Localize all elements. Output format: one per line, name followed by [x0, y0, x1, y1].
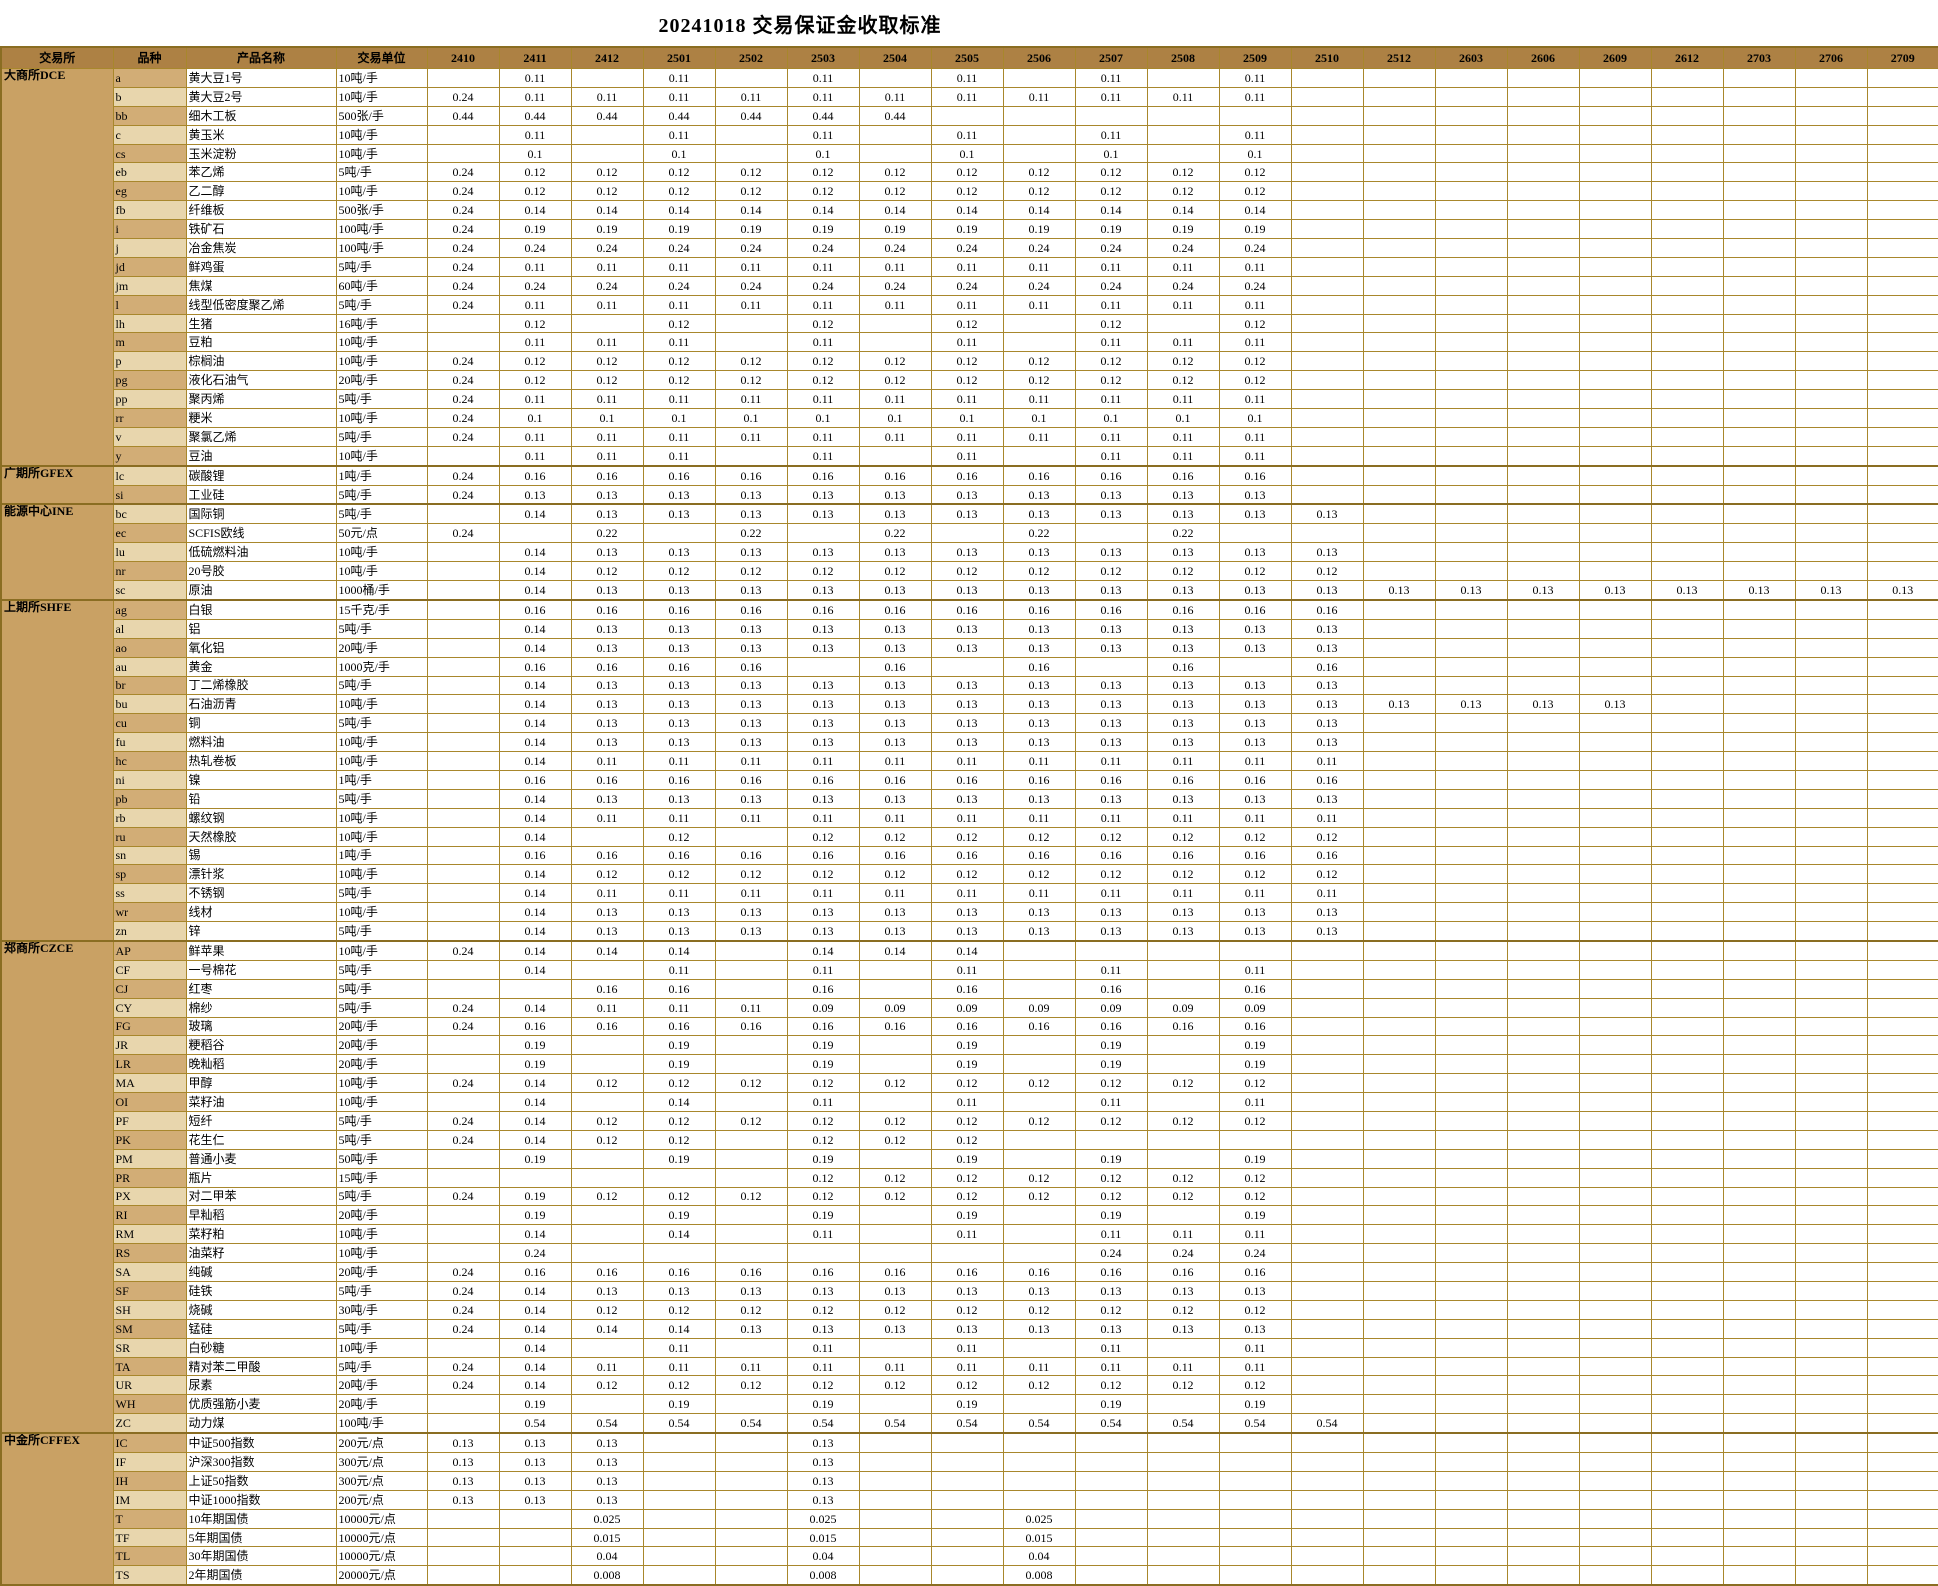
unit-cell: 1吨/手: [336, 770, 427, 789]
margin-value-cell: [1723, 257, 1795, 276]
margin-value-cell: [1291, 1566, 1363, 1585]
margin-value-cell: [1723, 1282, 1795, 1301]
margin-value-cell: [1795, 1490, 1867, 1509]
margin-value-cell: [1651, 1300, 1723, 1319]
margin-value-cell: [1867, 1017, 1938, 1036]
margin-value-cell: [1507, 1547, 1579, 1566]
code-cell: JR: [113, 1036, 186, 1055]
margin-value-cell: [931, 1528, 1003, 1547]
margin-value-cell: [1363, 1244, 1435, 1263]
margin-value-cell: [1219, 106, 1291, 125]
column-header: 2510: [1291, 47, 1363, 69]
margin-value-cell: 0.11: [1219, 752, 1291, 771]
margin-value-cell: [1651, 1206, 1723, 1225]
margin-value-cell: 0.12: [787, 562, 859, 581]
margin-value-cell: [1507, 1282, 1579, 1301]
code-cell: pg: [113, 371, 186, 390]
product-name-cell: 尿素: [186, 1376, 336, 1395]
margin-value-cell: [1075, 941, 1147, 960]
margin-value-cell: 0.11: [1147, 87, 1219, 106]
margin-value-cell: [1363, 543, 1435, 562]
margin-value-cell: 0.13: [571, 676, 643, 695]
margin-value-cell: 0.16: [931, 600, 1003, 619]
product-name-cell: 白砂糖: [186, 1338, 336, 1357]
margin-value-cell: [1651, 1566, 1723, 1585]
margin-value-cell: [1435, 1357, 1507, 1376]
margin-value-cell: 0.13: [1075, 695, 1147, 714]
margin-value-cell: 0.13: [1435, 695, 1507, 714]
margin-value-cell: [1651, 239, 1723, 258]
column-header: 2410: [427, 47, 499, 69]
margin-value-cell: [1147, 1528, 1219, 1547]
margin-value-cell: [1723, 314, 1795, 333]
margin-value-cell: 0.12: [643, 1111, 715, 1130]
margin-value-cell: 0.12: [643, 865, 715, 884]
margin-value-cell: [1507, 846, 1579, 865]
margin-value-cell: 0.1: [787, 409, 859, 428]
margin-value-cell: 0.19: [499, 1395, 571, 1414]
margin-value-cell: [1507, 733, 1579, 752]
margin-value-cell: [1795, 1282, 1867, 1301]
margin-value-cell: 0.13: [571, 903, 643, 922]
margin-value-cell: 0.19: [1219, 1149, 1291, 1168]
margin-value-cell: [1723, 543, 1795, 562]
product-name-cell: 聚氯乙烯: [186, 427, 336, 446]
margin-value-cell: 0.16: [499, 1017, 571, 1036]
margin-value-cell: [427, 638, 499, 657]
margin-value-cell: [1723, 1395, 1795, 1414]
margin-value-cell: [1507, 106, 1579, 125]
margin-value-cell: [1147, 1509, 1219, 1528]
margin-value-cell: [1363, 276, 1435, 295]
unit-cell: 10吨/手: [336, 144, 427, 163]
margin-value-cell: [1723, 638, 1795, 657]
margin-value-cell: [1291, 1036, 1363, 1055]
unit-cell: 10吨/手: [336, 352, 427, 371]
margin-value-cell: 0.14: [1075, 201, 1147, 220]
margin-value-cell: [1651, 182, 1723, 201]
margin-value-cell: 0.13: [571, 922, 643, 941]
margin-value-cell: [859, 1055, 931, 1074]
margin-value-cell: [1651, 846, 1723, 865]
margin-value-cell: [1075, 1528, 1147, 1547]
margin-value-cell: 0.24: [427, 1187, 499, 1206]
margin-value-cell: 0.11: [571, 884, 643, 903]
code-cell: TL: [113, 1547, 186, 1566]
margin-value-cell: [1651, 1453, 1723, 1472]
margin-value-cell: [859, 960, 931, 979]
margin-value-cell: [1579, 865, 1651, 884]
margin-value-cell: 0.14: [499, 1357, 571, 1376]
margin-value-cell: 0.12: [859, 827, 931, 846]
margin-value-cell: 0.11: [643, 333, 715, 352]
margin-value-cell: 0.13: [571, 714, 643, 733]
margin-value-cell: [1507, 676, 1579, 695]
margin-value-cell: [1579, 1055, 1651, 1074]
margin-value-cell: 0.19: [643, 1149, 715, 1168]
margin-value-cell: 0.19: [1219, 1395, 1291, 1414]
product-name-cell: 线型低密度聚乙烯: [186, 295, 336, 314]
product-name-cell: 鲜苹果: [186, 941, 336, 960]
product-name-cell: 细木工板: [186, 106, 336, 125]
margin-value-cell: 0.11: [1219, 1338, 1291, 1357]
table-row: eb苯乙烯5吨/手0.240.120.120.120.120.120.120.1…: [1, 163, 1938, 182]
margin-value-cell: 0.11: [1147, 427, 1219, 446]
margin-value-cell: 0.13: [1291, 922, 1363, 941]
margin-value-cell: [1435, 1225, 1507, 1244]
unit-cell: 20吨/手: [336, 1376, 427, 1395]
margin-value-cell: [1579, 163, 1651, 182]
margin-value-cell: 0.13: [1219, 903, 1291, 922]
margin-value-cell: [1075, 1566, 1147, 1585]
margin-value-cell: [1579, 1130, 1651, 1149]
margin-value-cell: [1435, 1282, 1507, 1301]
margin-value-cell: 0.11: [859, 87, 931, 106]
margin-value-cell: [1651, 1111, 1723, 1130]
margin-value-cell: [1579, 1300, 1651, 1319]
margin-value-cell: [1723, 808, 1795, 827]
margin-value-cell: 0.11: [931, 333, 1003, 352]
margin-value-cell: 0.11: [859, 427, 931, 446]
code-cell: ZC: [113, 1414, 186, 1433]
table-row: CF一号棉花5吨/手0.140.110.110.110.110.11: [1, 960, 1938, 979]
margin-value-cell: 0.13: [643, 695, 715, 714]
margin-value-cell: 0.11: [1219, 125, 1291, 144]
margin-value-cell: [715, 125, 787, 144]
table-row: IM中证1000指数200元/点0.130.130.130.13: [1, 1490, 1938, 1509]
margin-value-cell: 0.24: [787, 276, 859, 295]
unit-cell: 5吨/手: [336, 390, 427, 409]
margin-value-cell: 0.13: [715, 1319, 787, 1338]
margin-value-cell: [1651, 1509, 1723, 1528]
margin-value-cell: [1651, 638, 1723, 657]
margin-value-cell: 0.12: [859, 1130, 931, 1149]
margin-value-cell: 0.16: [1075, 979, 1147, 998]
margin-value-cell: 0.11: [1219, 390, 1291, 409]
margin-value-cell: [427, 695, 499, 714]
margin-value-cell: [1435, 846, 1507, 865]
margin-value-cell: [1867, 524, 1938, 543]
margin-value-cell: 0.12: [1147, 1168, 1219, 1187]
margin-value-cell: [427, 69, 499, 88]
margin-value-cell: 0.16: [1147, 1017, 1219, 1036]
margin-value-cell: 0.11: [1219, 1093, 1291, 1112]
margin-value-cell: 0.11: [499, 87, 571, 106]
margin-value-cell: 0.12: [931, 1376, 1003, 1395]
unit-cell: 1000克/手: [336, 657, 427, 676]
margin-value-cell: 0.12: [1219, 314, 1291, 333]
margin-value-cell: 0.11: [931, 69, 1003, 88]
margin-value-cell: [1363, 884, 1435, 903]
margin-value-cell: [1291, 941, 1363, 960]
margin-value-cell: 0.11: [787, 1225, 859, 1244]
margin-value-cell: [1723, 1509, 1795, 1528]
margin-value-cell: 0.11: [1003, 884, 1075, 903]
margin-value-cell: 0.14: [499, 941, 571, 960]
margin-value-cell: 0.24: [931, 239, 1003, 258]
margin-value-cell: 0.1: [1003, 409, 1075, 428]
margin-value-cell: 0.12: [1003, 1168, 1075, 1187]
margin-value-cell: 0.16: [1219, 600, 1291, 619]
margin-value-cell: [715, 333, 787, 352]
code-cell: WH: [113, 1395, 186, 1414]
margin-value-cell: [1795, 1244, 1867, 1263]
margin-value-cell: [1723, 941, 1795, 960]
margin-value-cell: 0.12: [1147, 182, 1219, 201]
code-cell: b: [113, 87, 186, 106]
margin-value-cell: [1867, 371, 1938, 390]
margin-value-cell: 0.19: [787, 1206, 859, 1225]
margin-value-cell: [1291, 1376, 1363, 1395]
margin-value-cell: 0.16: [1291, 600, 1363, 619]
margin-value-cell: 0.12: [931, 1074, 1003, 1093]
margin-value-cell: 0.13: [643, 789, 715, 808]
margin-value-cell: [1507, 960, 1579, 979]
table-row: SH烧碱30吨/手0.240.140.120.120.120.120.120.1…: [1, 1300, 1938, 1319]
table-row: PM普通小麦50吨/手0.190.190.190.190.190.19: [1, 1149, 1938, 1168]
margin-value-cell: 0.11: [571, 1357, 643, 1376]
table-row: zn锌5吨/手0.140.130.130.130.130.130.130.130…: [1, 922, 1938, 941]
margin-value-cell: [1363, 1225, 1435, 1244]
margin-value-cell: 0.14: [931, 941, 1003, 960]
margin-value-cell: 0.14: [499, 504, 571, 523]
margin-value-cell: [1867, 543, 1938, 562]
margin-value-cell: 0.11: [1075, 1357, 1147, 1376]
column-header: 交易所: [1, 47, 113, 69]
margin-value-cell: 0.11: [643, 1338, 715, 1357]
unit-cell: 500张/手: [336, 106, 427, 125]
page-title: 20241018 交易保证金收取标准: [659, 9, 942, 38]
margin-value-cell: 0.11: [1003, 87, 1075, 106]
margin-value-cell: 0.12: [787, 1111, 859, 1130]
margin-value-cell: [1435, 144, 1507, 163]
margin-value-cell: 0.19: [787, 1149, 859, 1168]
table-row: nr20号胶10吨/手0.140.120.120.120.120.120.120…: [1, 562, 1938, 581]
margin-value-cell: [1147, 1453, 1219, 1472]
margin-value-cell: 0.12: [715, 562, 787, 581]
margin-value-cell: 0.11: [1219, 295, 1291, 314]
margin-value-cell: [1291, 524, 1363, 543]
margin-value-cell: [1867, 1566, 1938, 1585]
code-cell: lh: [113, 314, 186, 333]
margin-value-cell: [1363, 1528, 1435, 1547]
column-header: 2507: [1075, 47, 1147, 69]
exchange-cell: 上期所SHFE: [1, 600, 113, 941]
margin-value-cell: 0.14: [499, 1376, 571, 1395]
code-cell: lu: [113, 543, 186, 562]
margin-value-cell: [1723, 201, 1795, 220]
margin-value-cell: [1651, 504, 1723, 523]
margin-value-cell: [1651, 1055, 1723, 1074]
margin-value-cell: [1867, 1433, 1938, 1452]
margin-value-cell: 0.13: [715, 504, 787, 523]
margin-value-cell: 0.13: [1147, 581, 1219, 600]
margin-value-cell: 0.16: [931, 1263, 1003, 1282]
margin-value-cell: [427, 144, 499, 163]
margin-value-cell: 0.12: [571, 1300, 643, 1319]
margin-value-cell: 0.11: [1147, 390, 1219, 409]
margin-value-cell: 0.11: [787, 390, 859, 409]
code-cell: SF: [113, 1282, 186, 1301]
margin-value-cell: 0.12: [1003, 371, 1075, 390]
margin-value-cell: 0.13: [787, 1282, 859, 1301]
margin-value-cell: [1363, 1300, 1435, 1319]
margin-value-cell: 0.11: [571, 752, 643, 771]
margin-value-cell: [1795, 106, 1867, 125]
margin-value-cell: 0.12: [1075, 163, 1147, 182]
margin-value-cell: [1435, 106, 1507, 125]
margin-value-cell: 0.12: [787, 827, 859, 846]
table-row: PR瓶片15吨/手0.120.120.120.120.120.120.12: [1, 1168, 1938, 1187]
margin-value-cell: [1651, 676, 1723, 695]
margin-value-cell: 0.16: [571, 1017, 643, 1036]
margin-value-cell: [1363, 1036, 1435, 1055]
margin-value-cell: 0.19: [643, 1036, 715, 1055]
margin-value-cell: [715, 1395, 787, 1414]
margin-value-cell: 0.13: [1435, 581, 1507, 600]
margin-value-cell: 0.11: [1075, 333, 1147, 352]
product-name-cell: 天然橡胶: [186, 827, 336, 846]
margin-value-cell: [1867, 295, 1938, 314]
margin-value-cell: [1435, 1017, 1507, 1036]
margin-value-cell: [931, 1547, 1003, 1566]
margin-value-cell: [1723, 1168, 1795, 1187]
margin-value-cell: 0.12: [499, 163, 571, 182]
unit-cell: 10吨/手: [336, 695, 427, 714]
margin-value-cell: 0.12: [1003, 1300, 1075, 1319]
margin-value-cell: [1291, 1055, 1363, 1074]
margin-value-cell: 0.24: [499, 1244, 571, 1263]
margin-value-cell: [643, 1528, 715, 1547]
margin-value-cell: [1723, 106, 1795, 125]
margin-value-cell: [1435, 619, 1507, 638]
margin-value-cell: 0.11: [1219, 257, 1291, 276]
table-row: pp聚丙烯5吨/手0.240.110.110.110.110.110.110.1…: [1, 390, 1938, 409]
margin-value-cell: [1723, 333, 1795, 352]
margin-value-cell: 0.16: [715, 657, 787, 676]
margin-value-cell: [1795, 295, 1867, 314]
margin-value-cell: [1291, 125, 1363, 144]
product-name-cell: 粳米: [186, 409, 336, 428]
margin-value-cell: [1579, 276, 1651, 295]
margin-value-cell: [715, 1244, 787, 1263]
unit-cell: 10吨/手: [336, 1093, 427, 1112]
margin-value-cell: [715, 1036, 787, 1055]
margin-value-cell: [1867, 1300, 1938, 1319]
column-header: 2505: [931, 47, 1003, 69]
margin-value-cell: 0.11: [1219, 427, 1291, 446]
table-row: PF短纤5吨/手0.240.140.120.120.120.120.120.12…: [1, 1111, 1938, 1130]
margin-value-cell: [1795, 1225, 1867, 1244]
margin-value-cell: 0.13: [1723, 581, 1795, 600]
margin-value-cell: [499, 1168, 571, 1187]
margin-value-cell: [1795, 409, 1867, 428]
margin-value-cell: 0.14: [499, 752, 571, 771]
margin-value-cell: [1003, 446, 1075, 465]
margin-value-cell: [931, 1453, 1003, 1472]
margin-value-cell: [571, 1149, 643, 1168]
margin-value-cell: 0.12: [1219, 1111, 1291, 1130]
code-cell: RM: [113, 1225, 186, 1244]
margin-value-cell: [1363, 619, 1435, 638]
margin-value-cell: [1435, 314, 1507, 333]
margin-value-cell: [715, 979, 787, 998]
table-row: fb纤维板500张/手0.240.140.140.140.140.140.140…: [1, 201, 1938, 220]
column-header: 2504: [859, 47, 931, 69]
product-name-cell: 30年期国债: [186, 1547, 336, 1566]
margin-value-cell: [1003, 333, 1075, 352]
margin-value-cell: 0.22: [715, 524, 787, 543]
margin-value-cell: [571, 144, 643, 163]
margin-value-cell: 0.12: [1219, 865, 1291, 884]
margin-value-cell: 0.22: [1147, 524, 1219, 543]
margin-value-cell: [1795, 1319, 1867, 1338]
margin-value-cell: [1507, 485, 1579, 504]
product-name-cell: 粳稻谷: [186, 1036, 336, 1055]
margin-value-cell: 0.14: [499, 695, 571, 714]
margin-value-cell: 0.16: [1147, 466, 1219, 485]
margin-value-cell: [1291, 163, 1363, 182]
margin-value-cell: 0.11: [1075, 884, 1147, 903]
unit-cell: 60吨/手: [336, 276, 427, 295]
margin-value-cell: [1003, 69, 1075, 88]
margin-value-cell: [1507, 770, 1579, 789]
margin-value-cell: [427, 125, 499, 144]
margin-value-cell: [1003, 1036, 1075, 1055]
margin-value-cell: [715, 1206, 787, 1225]
unit-cell: 5吨/手: [336, 619, 427, 638]
unit-cell: 5吨/手: [336, 1130, 427, 1149]
margin-value-cell: 0.1: [1219, 409, 1291, 428]
margin-value-cell: 0.13: [1075, 581, 1147, 600]
unit-cell: 5吨/手: [336, 1357, 427, 1376]
margin-value-cell: 0.12: [1147, 163, 1219, 182]
margin-value-cell: 0.11: [859, 884, 931, 903]
margin-value-cell: [1579, 789, 1651, 808]
margin-value-cell: 0.12: [571, 1111, 643, 1130]
margin-value-cell: 0.13: [1075, 714, 1147, 733]
margin-value-cell: [1723, 295, 1795, 314]
margin-value-cell: [1003, 1453, 1075, 1472]
margin-value-cell: [1723, 1566, 1795, 1585]
unit-cell: 1吨/手: [336, 466, 427, 485]
margin-value-cell: [1723, 846, 1795, 865]
margin-value-cell: [1219, 1547, 1291, 1566]
margin-value-cell: 0.12: [1147, 562, 1219, 581]
margin-value-cell: [1291, 1263, 1363, 1282]
margin-value-cell: [1219, 524, 1291, 543]
margin-value-cell: 0.19: [1075, 1149, 1147, 1168]
margin-value-cell: [1651, 257, 1723, 276]
margin-value-cell: 0.11: [571, 446, 643, 465]
code-cell: TS: [113, 1566, 186, 1585]
margin-value-cell: 0.13: [787, 789, 859, 808]
margin-value-cell: [1435, 865, 1507, 884]
margin-value-cell: [1003, 1225, 1075, 1244]
margin-value-cell: [1435, 827, 1507, 846]
margin-table: 交易所品种产品名称交易单位241024112412250125022503250…: [0, 46, 1938, 1586]
margin-value-cell: [1579, 1528, 1651, 1547]
margin-value-cell: 0.13: [1291, 695, 1363, 714]
margin-value-cell: 0.12: [931, 352, 1003, 371]
margin-value-cell: [1579, 1149, 1651, 1168]
margin-value-cell: 0.13: [1147, 733, 1219, 752]
margin-value-cell: 0.13: [1291, 789, 1363, 808]
margin-value-cell: [1435, 125, 1507, 144]
margin-value-cell: [1651, 789, 1723, 808]
margin-value-cell: [1435, 543, 1507, 562]
product-name-cell: 锌: [186, 922, 336, 941]
